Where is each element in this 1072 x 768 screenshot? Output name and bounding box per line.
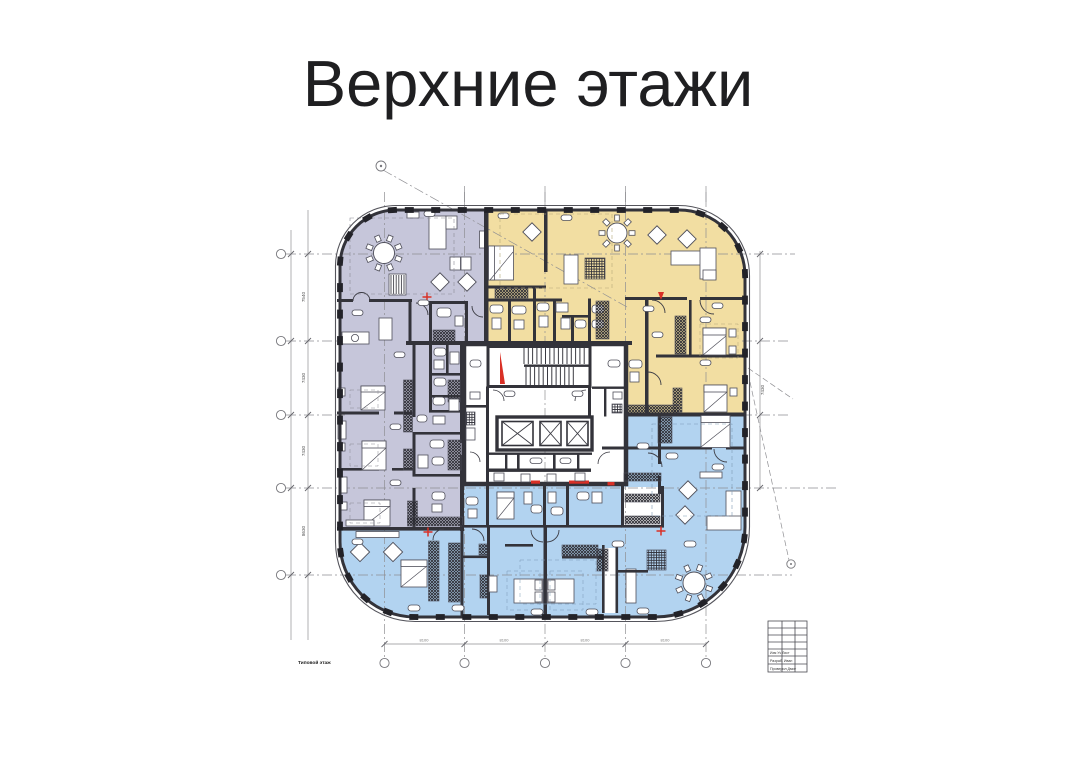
svg-text:7430: 7430 bbox=[301, 445, 306, 456]
svg-text:Изм Уч Лист: Изм Уч Лист bbox=[770, 651, 790, 655]
svg-text:8100: 8100 bbox=[661, 638, 671, 643]
svg-text:8100: 8100 bbox=[420, 638, 430, 643]
svg-text:Разраб. Иван: Разраб. Иван bbox=[770, 659, 792, 663]
svg-text:Типовой этаж: Типовой этаж bbox=[298, 659, 331, 666]
svg-text:8100: 8100 bbox=[581, 638, 591, 643]
svg-text:7430: 7430 bbox=[301, 372, 306, 383]
svg-text:8100: 8100 bbox=[500, 638, 510, 643]
svg-text:Проверил Дмит: Проверил Дмит bbox=[770, 667, 796, 671]
svg-text:7430: 7430 bbox=[760, 384, 765, 395]
svg-text:7540: 7540 bbox=[301, 291, 306, 302]
svg-text:8630: 8630 bbox=[301, 525, 306, 536]
